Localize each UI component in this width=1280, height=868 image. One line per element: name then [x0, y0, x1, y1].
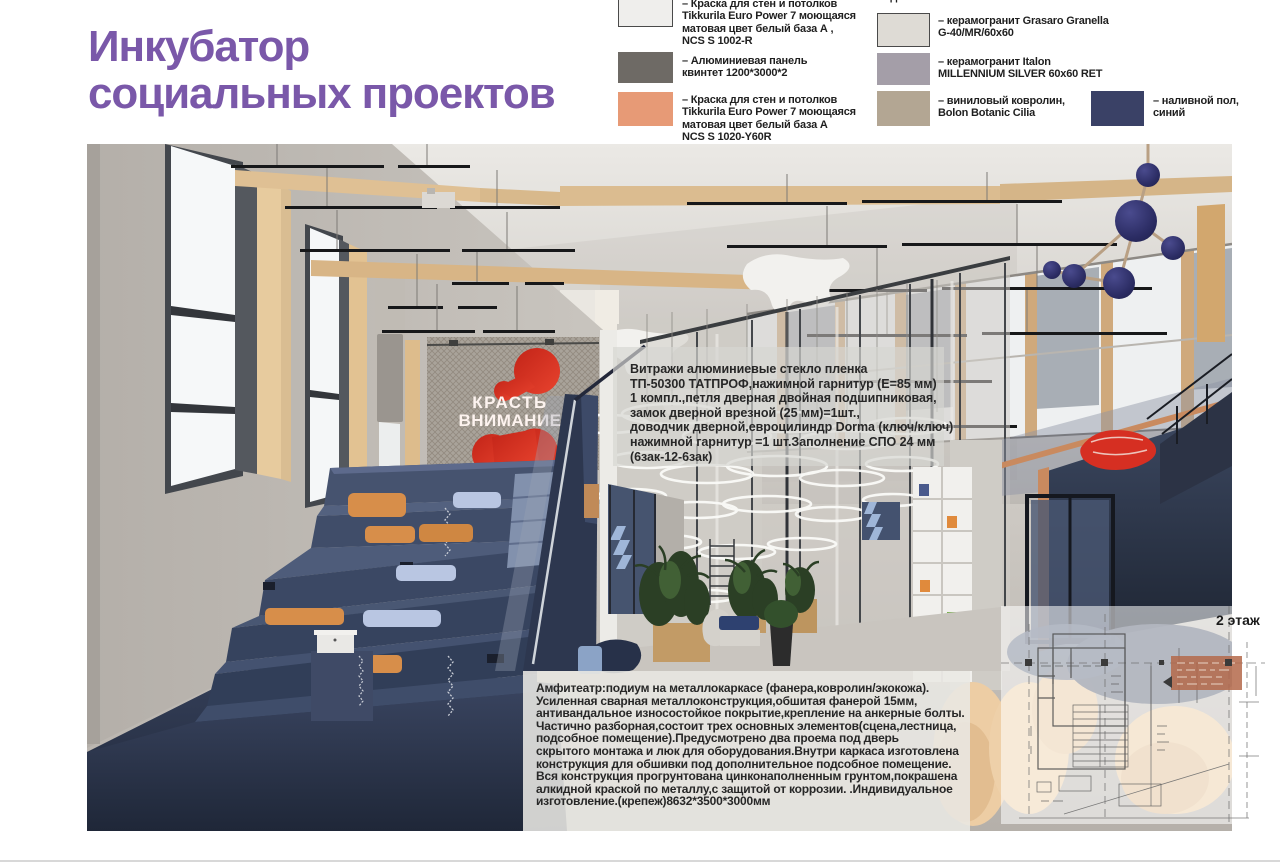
svg-text:КРАСТЬ: КРАСТЬ [472, 393, 548, 412]
